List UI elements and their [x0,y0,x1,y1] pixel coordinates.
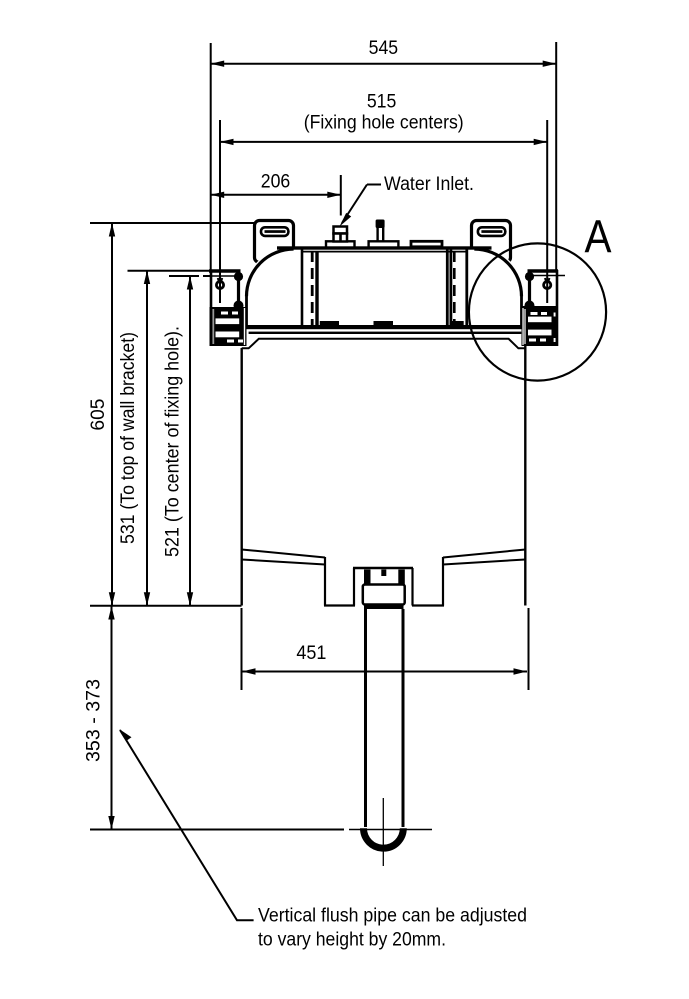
svg-text:521 (To center of fixing hole): 521 (To center of fixing hole). [163,326,184,557]
svg-text:Water Inlet.: Water Inlet. [384,174,474,195]
svg-text:515: 515 [367,92,397,113]
svg-text:(Fixing hole centers): (Fixing hole centers) [304,113,464,134]
svg-text:531 (To top of wall bracket): 531 (To top of wall bracket) [118,332,139,544]
svg-text:353 - 373: 353 - 373 [84,679,105,762]
svg-text:605: 605 [88,399,109,431]
svg-text:A: A [585,211,612,263]
svg-text:to vary height by 20mm.: to vary height by 20mm. [258,930,446,951]
svg-text:Vertical flush pipe can be adj: Vertical flush pipe can be adjusted [258,906,527,927]
svg-text:451: 451 [296,643,326,664]
svg-text:545: 545 [369,38,399,59]
svg-text:206: 206 [261,172,291,193]
